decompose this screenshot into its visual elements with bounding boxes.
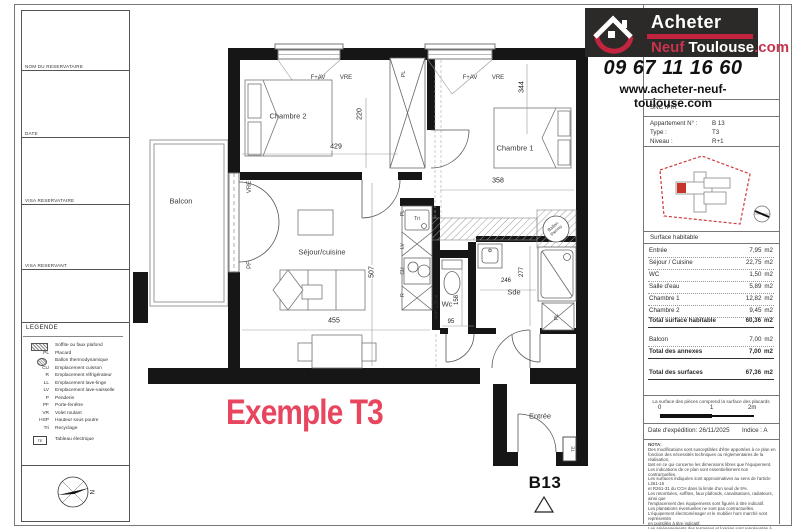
legend-item: PF Porte-fenêtre [23,403,126,410]
legend-item: CU Emplacement cuisson [23,366,126,373]
legend-item: Ballon thermodynamique [23,358,126,365]
scale-tick-2m: 2m [748,405,756,411]
divider [643,99,779,100]
box-label: NOM DU RESERVATAIRE [25,64,83,69]
divider [643,243,779,244]
room-label-chambre2: Chambre 2 [269,112,306,121]
room-label-wc: Wc [442,300,453,309]
tag-te: TE [571,446,576,452]
dim-344: 344 [519,80,526,94]
info-value-apartment: B 13 [712,120,725,127]
info-label-level: Niveau : [650,138,673,145]
surface-row: WC 1,50m2 [648,270,774,282]
dim-95: 95 [447,319,456,325]
divider [643,116,779,117]
dim-220: 220 [357,107,364,121]
compass-north-letter: N [88,490,94,494]
info-label-apartment: Appartement N° : [650,120,698,127]
tag-f-av-window1: F+AV [311,75,326,81]
coffee-table [298,210,333,235]
tag-f-av-window2: F+AV [463,75,478,81]
surface-row: Séjour / Cuisine 22,75m2 [648,258,774,270]
total-annexes-row: Total des annexes 7,00m2 [648,347,774,359]
dim-429: 429 [329,144,343,151]
company-logo: Acheter Neuf Toulouse.com [585,8,758,57]
bed-chambre1 [494,108,571,168]
legend-item: PL Placard [23,351,126,358]
logo-line1: Acheter [651,12,722,33]
total-habitable-row: Total surface habitable 60,36m2 [648,316,774,328]
legend-item: Soffite ou faux plafond [23,343,126,350]
box-visa-reservataire: VISA RESERVATAIRE [21,137,130,206]
box-nom-reservataire: NOM DU RESERVATAIRE [21,10,130,72]
info-label-type: Type : [650,129,667,136]
tag-tri-kitchen: Tri [414,216,420,222]
box-empty [21,269,130,324]
surface-row: Salle d'eau 5,89m2 [648,282,774,294]
tag-hsp: HSP 2.35 m [434,295,439,319]
room-label-entree: Entrée [529,412,551,421]
unit-highlight [677,183,686,193]
toilet-bowl [444,272,460,295]
toilet-tank [442,260,462,269]
company-name: SNC IPIR [650,104,677,111]
north-compass: N [48,468,100,518]
scale-tick-1: 1 [710,405,713,411]
placard-note: La surface des pièces comprend la surfac… [645,399,777,404]
room-label-sejour: Séjour/cuisine [298,248,345,257]
divider [643,423,779,424]
tag-r-kitchen: R [400,293,406,297]
tag-vre-window2: VRE [492,75,504,81]
phone-number: 09 67 11 16 60 [588,57,758,80]
floor-plan-drawing [130,38,665,523]
surface-row: Entrée 7,95m2 [648,246,774,258]
compass-needle [58,488,89,495]
surface-row: Chambre 1 12,82m2 [648,294,774,306]
legend-item: Tri Recyclage [23,426,126,433]
legend-item: P Penderie [23,396,126,403]
divider [643,231,779,232]
scale-tick-0: 0 [658,405,661,411]
titleblock-right-border [779,4,780,524]
legend-item: LL Emplacement lave-linge [23,381,126,388]
te-swatch-icon: TE [33,436,47,445]
nota-disclaimer: NOTA: Des modifications sont susceptible… [648,443,776,529]
house-icon [591,11,647,55]
legend-title: LEGENDE [26,325,58,331]
tag-cu-kitchen: CU [400,267,406,274]
box-label: VISA RESERVATAIRE [25,198,74,203]
box-date: DATE [21,70,130,139]
room-label-balcon: Balcon [170,197,193,206]
legend-item: TE Tableau électrique [23,437,126,444]
tag-lv-kitchen: LV [400,243,406,249]
expedition-date: Date d'expédition: 26/11/2025 [648,427,730,434]
floor-plan-sheet: NOM DU RESERVATAIRE DATE VISA RESERVATAI… [0,0,800,529]
dim-358: 358 [491,178,505,185]
tag-vre-window1: VRE [340,75,352,81]
legend-item: LV Emplacement lave-vaisselle [23,388,126,395]
tag-pf-balcony-door: PF [247,261,253,269]
legend-item: VR Volet roulant [23,411,126,418]
entry-triangle-marker [535,497,553,512]
revision-indice: Indice : A [742,427,767,434]
legend-item: R Emplacement réfrigérateur [23,373,126,380]
room-label-sde: Sde [507,288,520,297]
room-label-chambre1: Chambre 1 [496,144,533,153]
site-location-plan [646,150,778,230]
box-label: DATE [25,131,38,136]
divider [643,395,779,396]
scale-bar-segment-1 [660,414,712,418]
info-value-level: R+1 [712,138,724,145]
unit-number: B13 [529,473,562,493]
surfaces-section-title: Surface habitable [650,234,698,241]
balcony-outline [150,140,228,306]
legend-underline [23,336,123,337]
dim-455: 455 [327,318,341,325]
annex-row: Balcon 7,00m2 [648,335,774,347]
tag-pl-sde-closet: PL [554,314,560,320]
divider [643,439,779,440]
tag-pl-kitchen: PL [400,210,406,216]
legend-item: HSP Hauteur sous poutre [23,418,126,425]
dining-table [298,335,376,368]
tag-pl-hall-closet: PL [401,71,407,78]
siteplan-compass-icon [754,206,770,222]
dim-158: 158 [454,294,460,306]
total-surfaces-row: Total des surfaces 67,36m2 [648,368,774,380]
dim-507: 507 [369,265,376,279]
scale-bar-segment-2 [712,415,754,417]
box-visa-reservant: VISA RESERVANT [21,204,130,271]
info-value-type: T3 [712,129,719,136]
logo-line2: Neuf Toulouse.com [651,39,789,56]
sofa [273,270,365,310]
dim-246: 246 [500,278,512,284]
box-label: VISA RESERVANT [25,263,67,268]
plan-title: Exemple T3 [226,393,383,433]
dim-277: 277 [519,266,525,278]
tag-vre-balcony-door: VRE [247,181,253,193]
divider [643,146,779,147]
